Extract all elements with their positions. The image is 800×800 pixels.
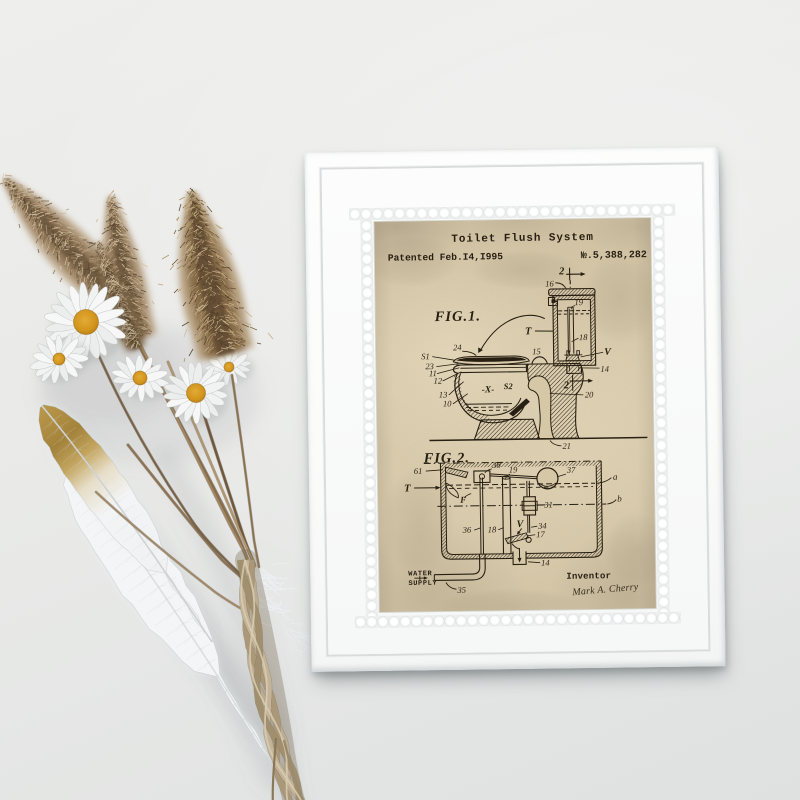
svg-text:Toilet Flush System: Toilet Flush System — [451, 232, 594, 246]
svg-text:a: a — [613, 472, 618, 482]
svg-text:15: 15 — [532, 346, 541, 356]
svg-text:14: 14 — [600, 364, 609, 374]
svg-text:36: 36 — [462, 525, 472, 535]
svg-text:№.5,388,282: №.5,388,282 — [581, 250, 647, 262]
svg-text:14: 14 — [541, 558, 550, 568]
svg-text:61: 61 — [414, 466, 423, 476]
svg-text:12: 12 — [434, 376, 443, 386]
svg-text:b: b — [617, 494, 622, 504]
svg-text:19: 19 — [574, 297, 583, 307]
svg-text:F: F — [459, 495, 466, 505]
svg-text:S1: S1 — [421, 351, 430, 361]
svg-text:FIG.1.: FIG.1. — [434, 308, 482, 325]
svg-text:37: 37 — [566, 465, 576, 475]
svg-text:Mark A. Cherry: Mark A. Cherry — [571, 582, 639, 599]
svg-text:16: 16 — [545, 278, 554, 288]
svg-text:S2: S2 — [504, 381, 514, 391]
svg-text:31: 31 — [543, 499, 553, 509]
svg-text:T: T — [525, 326, 532, 337]
svg-text:18: 18 — [579, 332, 588, 342]
svg-text:SUPPLY: SUPPLY — [408, 580, 437, 588]
svg-text:19: 19 — [509, 464, 518, 474]
svg-text:24: 24 — [453, 342, 462, 352]
svg-text:18: 18 — [488, 524, 497, 534]
svg-text:Patented Feb.I4,I995: Patented Feb.I4,I995 — [388, 251, 504, 264]
svg-text:V: V — [517, 519, 525, 530]
svg-text:WATER: WATER — [408, 570, 432, 578]
svg-text:17: 17 — [536, 529, 545, 539]
svg-text:V: V — [604, 347, 612, 358]
svg-text:2: 2 — [558, 266, 565, 277]
svg-text:38: 38 — [491, 460, 501, 470]
svg-text:20: 20 — [585, 389, 594, 399]
svg-text:35: 35 — [456, 585, 466, 595]
svg-text:T: T — [404, 483, 411, 494]
svg-text:-X-: -X- — [482, 385, 495, 395]
svg-text:Inventor: Inventor — [566, 571, 611, 582]
svg-text:10: 10 — [443, 398, 452, 408]
svg-text:2: 2 — [563, 380, 570, 391]
svg-text:21: 21 — [562, 441, 571, 451]
